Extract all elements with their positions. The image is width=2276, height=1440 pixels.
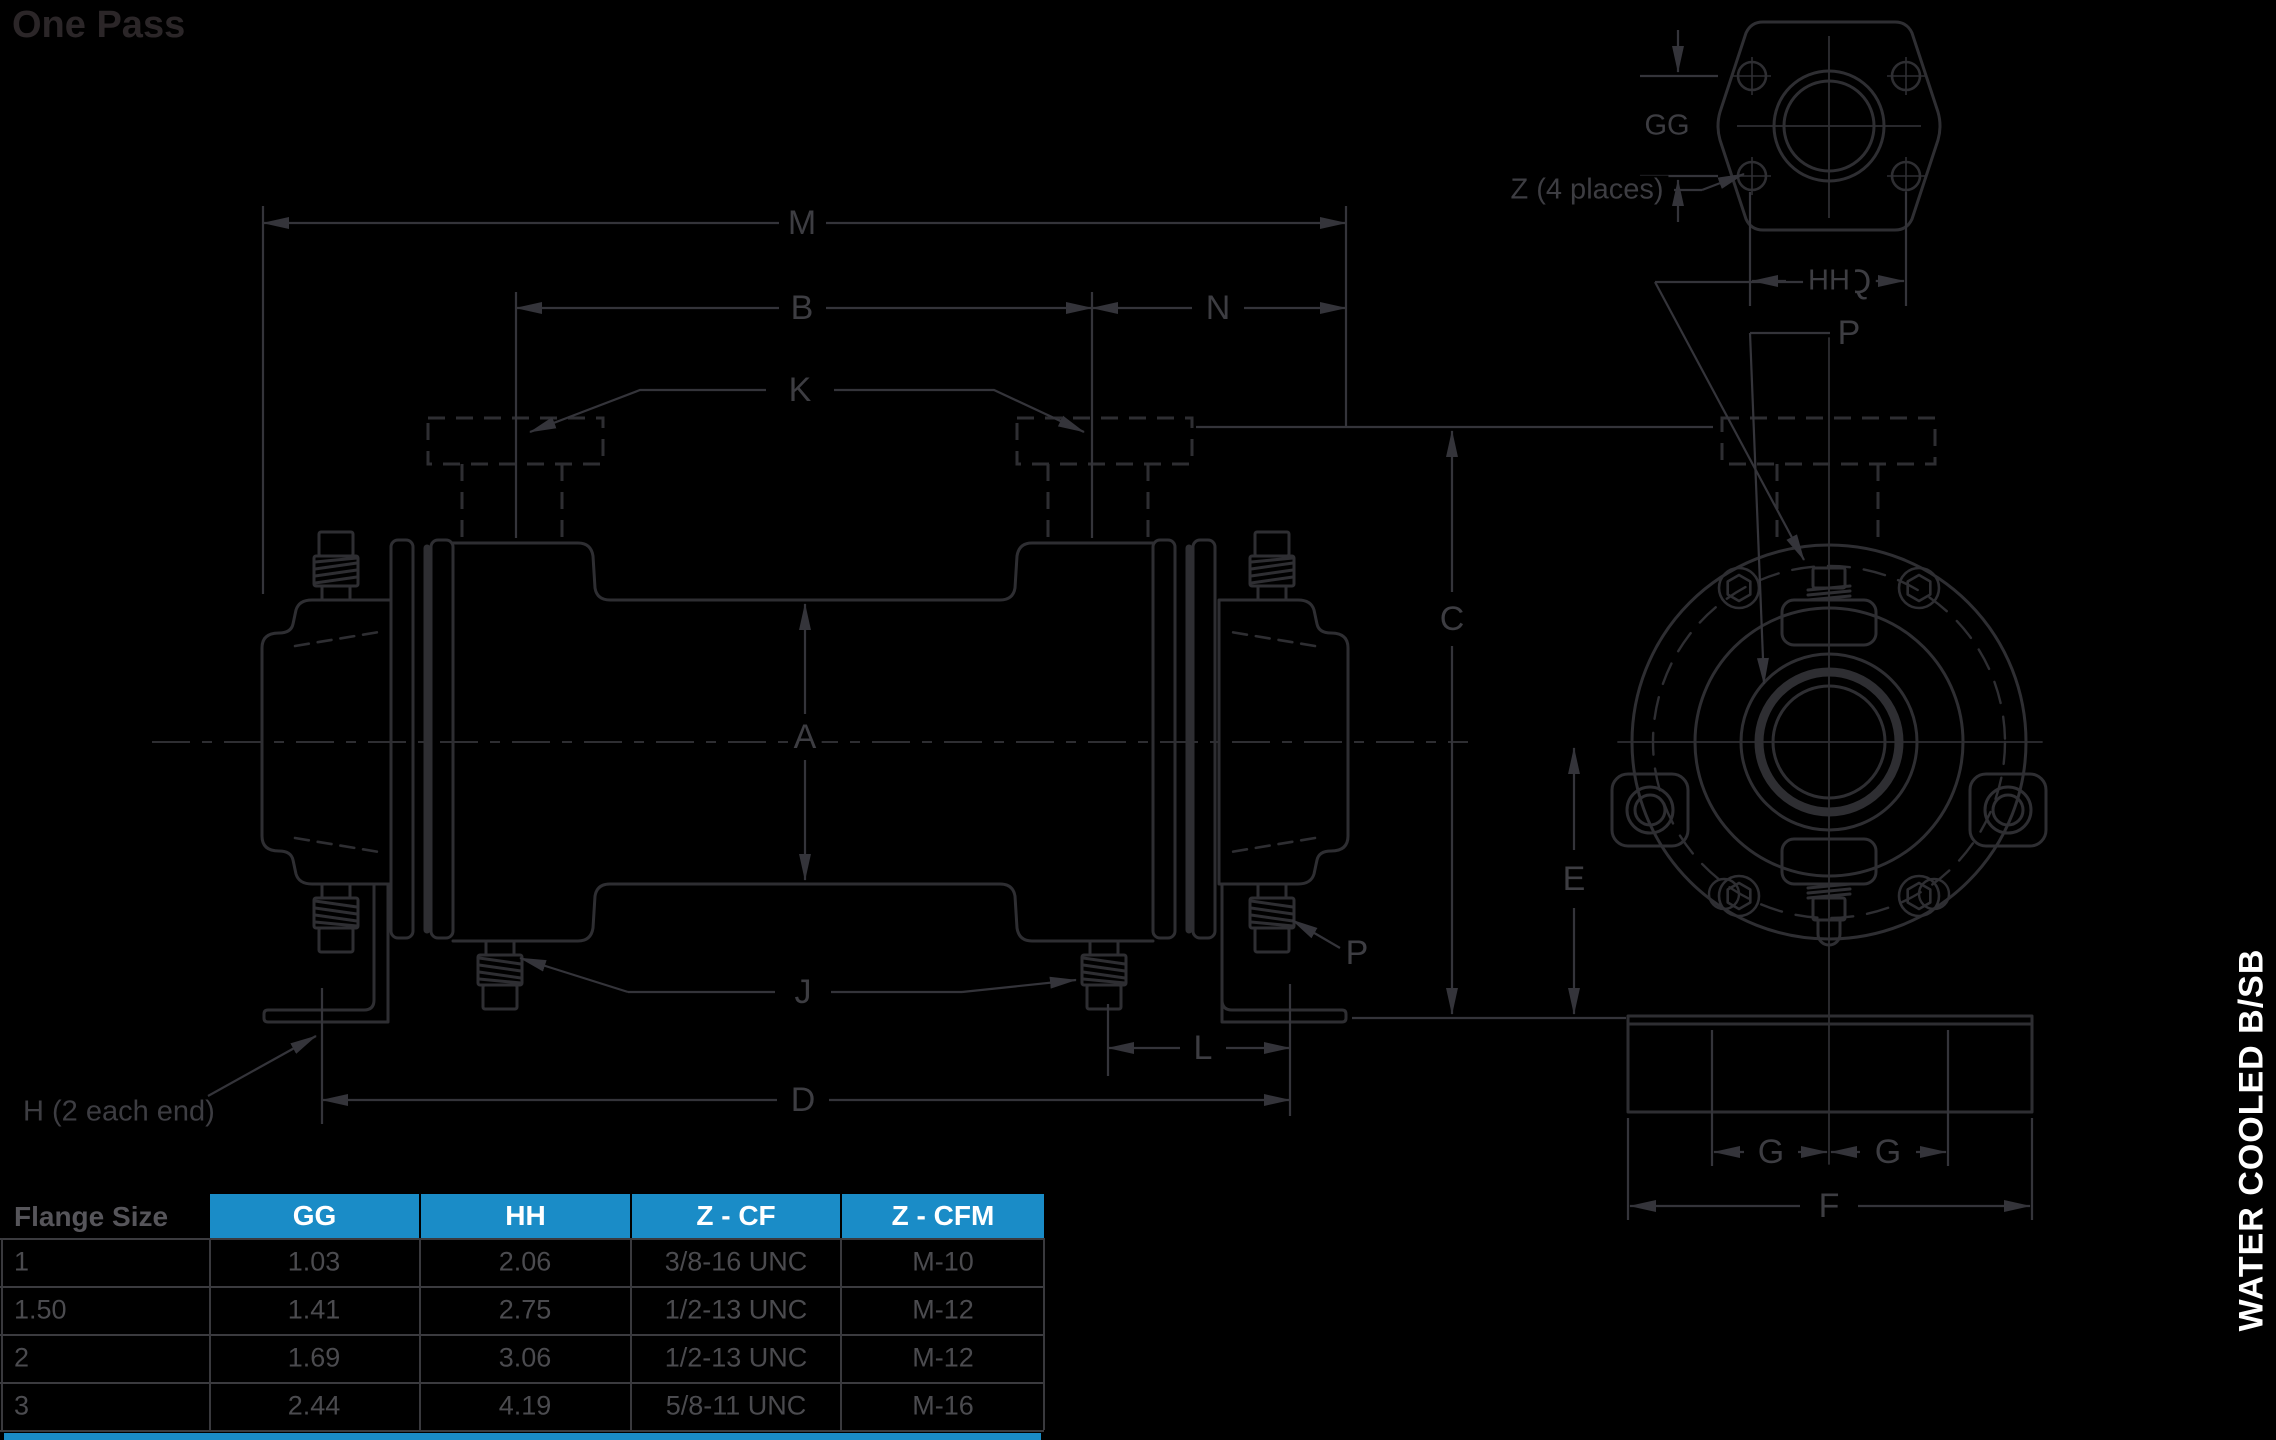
end-view — [1612, 338, 2046, 1164]
page-title: One Pass — [12, 4, 185, 47]
table-cell: 1/2-13 UNC — [665, 1343, 808, 1374]
table-cell: 1.41 — [288, 1295, 341, 1326]
column-header-hh: HH — [421, 1194, 630, 1238]
table-cell: 1.03 — [288, 1247, 341, 1278]
table-cell: 3/8-16 UNC — [665, 1247, 808, 1278]
table-row-header: Flange Size — [14, 1201, 168, 1233]
table-cell: 2 — [14, 1343, 29, 1374]
table-cell: M-16 — [912, 1391, 974, 1422]
table-cell: 4.19 — [499, 1391, 552, 1422]
dim-label-m: M — [783, 206, 821, 240]
table-cell: M-12 — [912, 1295, 974, 1326]
table-separator — [0, 1286, 1044, 1288]
table-cell: 5/8-11 UNC — [666, 1391, 807, 1422]
table-cell: 2.06 — [499, 1247, 552, 1278]
dim-label-hh: HH — [1803, 267, 1855, 296]
table-cell: 1/2-13 UNC — [665, 1295, 808, 1326]
table-divider — [419, 1238, 421, 1430]
table-cell: 1 — [14, 1247, 29, 1278]
table-divider — [1043, 1238, 1045, 1430]
table-cell: 3.06 — [499, 1343, 552, 1374]
dim-label-a: A — [789, 720, 822, 754]
dim-label-j: J — [790, 975, 817, 1009]
column-header-zcfm: Z - CFM — [842, 1194, 1044, 1238]
dim-label-z-note: Z (4 places) — [1505, 176, 1668, 205]
dim-label-p-side: P — [1341, 936, 1374, 970]
table-cell: 2.75 — [499, 1295, 552, 1326]
column-header-gg: GG — [210, 1194, 419, 1238]
dim-label-d: D — [786, 1083, 821, 1117]
dim-label-n: N — [1201, 291, 1236, 325]
dim-label-p-top: P — [1833, 316, 1866, 350]
dim-label-gg: GG — [1639, 112, 1694, 141]
series-side-label: WATER COOLED B/SB — [2233, 949, 2272, 1332]
table-cell: 3 — [14, 1391, 29, 1422]
dim-label-h-note: H (2 each end) — [18, 1098, 220, 1127]
dim-label-c: C — [1435, 602, 1470, 636]
table-separator — [0, 1430, 1044, 1432]
table-separator — [0, 1238, 1044, 1240]
dim-label-f: F — [1814, 1189, 1845, 1223]
table-cell: 1.69 — [288, 1343, 341, 1374]
dim-label-k: K — [784, 373, 817, 407]
next-table-header-strip — [4, 1433, 1041, 1440]
table-separator — [0, 1382, 1044, 1384]
table-divider — [630, 1238, 632, 1430]
column-header-zcf: Z - CF — [632, 1194, 840, 1238]
dim-label-l: L — [1189, 1031, 1218, 1065]
dim-label-b: B — [786, 291, 819, 325]
dim-label-e: E — [1558, 862, 1591, 896]
dim-label-g-left: G — [1753, 1135, 1789, 1169]
table-cell: 2.44 — [288, 1391, 341, 1422]
table-divider — [209, 1238, 211, 1430]
table-divider — [840, 1238, 842, 1430]
phantom-brackets — [428, 418, 1192, 540]
dimension-lines — [208, 30, 2032, 1220]
dim-label-g-right: G — [1870, 1135, 1906, 1169]
table-cell: M-12 — [912, 1343, 974, 1374]
table-cell: M-10 — [912, 1247, 974, 1278]
table-cell: 1.50 — [14, 1295, 67, 1326]
catalog-page: One Pass WATER COOLED B/SB M B N K A C E… — [0, 0, 2276, 1440]
table-divider — [1, 1238, 3, 1430]
table-separator — [0, 1334, 1044, 1336]
